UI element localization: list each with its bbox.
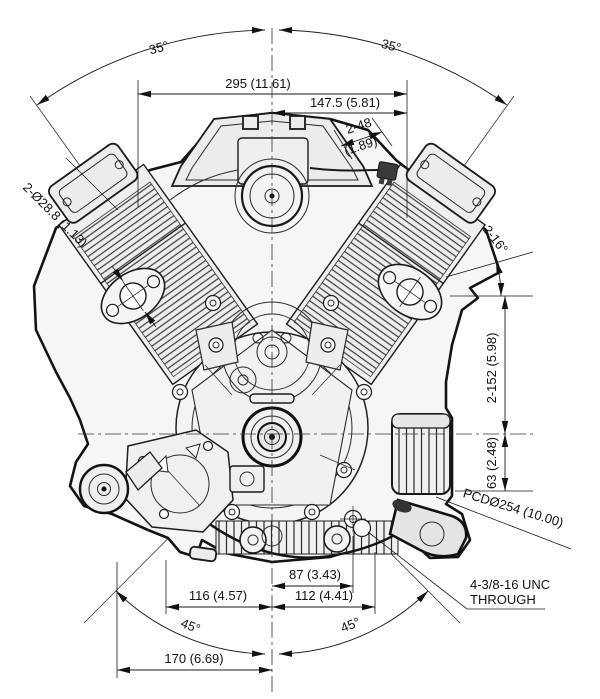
- dim-half-width-label: 147.5 (5.81): [310, 95, 380, 110]
- dim-mount-112-label: 112 (4.41): [295, 588, 353, 603]
- dim-mount-170-label: 170 (6.69): [164, 651, 223, 666]
- dim-crank-to-head: 2-152 (5.98): [484, 296, 505, 434]
- dim-bottom-angle-left-label: 45°: [179, 615, 203, 636]
- dim-half-width: 147.5 (5.81): [272, 95, 407, 113]
- engine-drawing: [34, 113, 506, 562]
- label-bolt-spec-line1: 4-3/8-16 UNC: [470, 577, 550, 592]
- label-bolt-circle-text: PCDØ254 (10.00): [461, 485, 565, 530]
- dim-crank-to-base-label: 63 (2.48): [484, 437, 499, 489]
- dim-mount-87-label: 87 (3.43): [289, 567, 341, 582]
- oil-filter: [392, 414, 450, 494]
- dim-overall-width-label: 295 (11.61): [225, 76, 291, 91]
- dim-top-angle-left-label: 35°: [147, 38, 170, 58]
- dim-mount-116-label: 116 (4.57): [189, 588, 247, 603]
- dim-crank-to-head-label: 2-152 (5.98): [484, 333, 499, 404]
- mount-bolt-lower-right: [354, 520, 371, 537]
- dim-mount-116: 116 (4.57): [166, 560, 272, 614]
- dim-top-angle-right-label: 35°: [380, 36, 403, 56]
- dim-crank-to-base: 63 (2.48): [455, 434, 533, 491]
- dim-bottom-angle-right-label: 45°: [338, 614, 362, 635]
- label-bolt-spec-line2: THROUGH: [470, 592, 536, 607]
- drawing-page: 35° 35° 295 (11.61) 147.5 (5.81) 2-48 (1…: [0, 0, 600, 699]
- engine-dimension-drawing: 35° 35° 295 (11.61) 147.5 (5.81) 2-48 (1…: [0, 0, 600, 699]
